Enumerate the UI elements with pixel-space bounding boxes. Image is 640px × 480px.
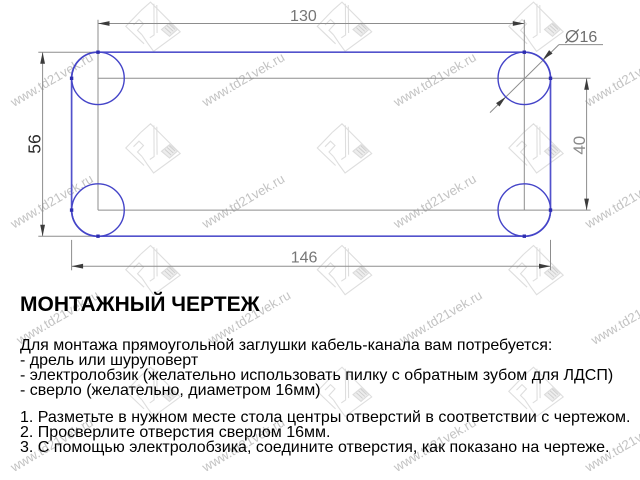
svg-text:16: 16 bbox=[580, 29, 598, 46]
svg-text:56: 56 bbox=[25, 134, 45, 153]
svg-text:130: 130 bbox=[290, 8, 317, 25]
svg-text:40: 40 bbox=[570, 136, 589, 155]
svg-text:146: 146 bbox=[291, 250, 318, 267]
